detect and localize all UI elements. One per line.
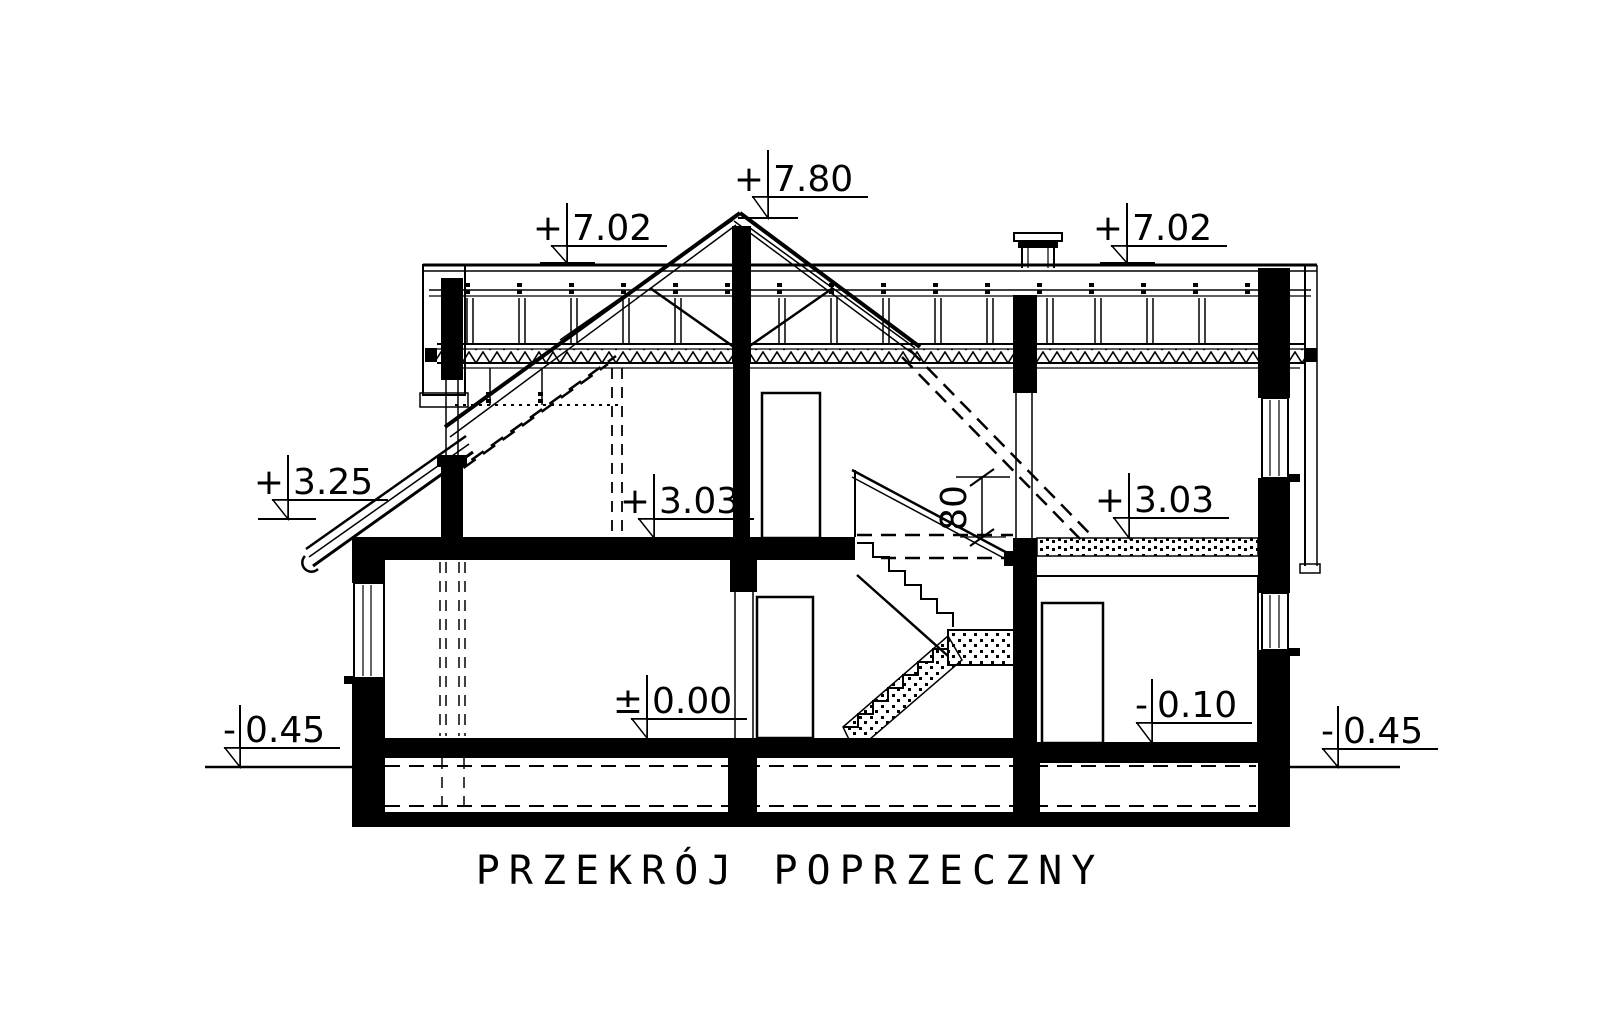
level-sign: -	[223, 710, 236, 751]
level-value: 3.03	[659, 481, 739, 522]
dim-value: 80	[934, 485, 975, 531]
stairs	[843, 470, 1018, 752]
foundation	[205, 755, 1400, 827]
left-wall-window	[354, 583, 384, 678]
doors	[757, 393, 1103, 743]
ground-floor-slab	[352, 738, 1037, 758]
level-marker-ground-floor: ± 0.00	[613, 675, 747, 738]
level-sign: +	[620, 481, 650, 522]
level-sign: -	[1135, 685, 1148, 726]
right-ground-window	[1262, 593, 1288, 650]
level-marker-attic-floor-right: + 3.03	[1095, 473, 1229, 538]
level-value: 7.80	[773, 159, 853, 200]
level-sign: -	[1321, 711, 1334, 752]
right-roof-overhang	[1300, 265, 1320, 573]
porch-column-hidden	[440, 562, 465, 736]
lower-flight	[843, 636, 962, 752]
chimney	[1014, 233, 1062, 268]
ground-door-leaf	[757, 597, 813, 738]
truss-kingpost	[732, 226, 751, 362]
attic-floor-right	[1037, 538, 1258, 576]
roof-joist-posts	[467, 298, 1205, 344]
cross-section-drawing: + 7.80 + 7.02 + 7.02 + 3.25 + 3.03 +	[0, 0, 1600, 1028]
level-value: 7.02	[1132, 208, 1212, 249]
level-marker-roof-right: + 7.02	[1093, 203, 1227, 263]
attic-door-opening-jambs	[1016, 393, 1032, 538]
attic-floor-slab	[352, 537, 855, 560]
level-sign: +	[1093, 208, 1123, 249]
level-marker-terrain-right: - 0.45	[1321, 706, 1438, 767]
level-sign: +	[533, 208, 563, 249]
roof-truss	[445, 213, 920, 437]
level-sign: +	[734, 159, 764, 200]
upper-flight	[857, 543, 953, 656]
level-sign: +	[1095, 480, 1125, 521]
left-fascia	[420, 265, 468, 407]
level-marker-roof-left: + 7.02	[533, 203, 667, 263]
level-sign: +	[254, 462, 284, 503]
level-value: 0.45	[1343, 711, 1423, 752]
level-value: 3.25	[293, 462, 373, 503]
level-sign: ±	[613, 681, 643, 722]
level-value: 7.02	[572, 208, 652, 249]
level-value: 0.00	[652, 681, 732, 722]
level-value: 0.10	[1157, 685, 1237, 726]
drawing-sheet: + 7.80 + 7.02 + 7.02 + 3.25 + 3.03 +	[0, 0, 1600, 1028]
level-marker-ridge: + 7.80	[734, 150, 868, 218]
level-marker-garage-floor: - 0.10	[1135, 679, 1252, 743]
truss-strut-right	[741, 288, 833, 352]
attic-door-leaf	[762, 393, 820, 538]
level-value: 0.45	[245, 710, 325, 751]
footing-course	[352, 812, 1290, 827]
garage-door-leaf	[1042, 603, 1103, 743]
level-value: 3.03	[1134, 480, 1214, 521]
garage-floor-slab	[1035, 743, 1290, 763]
truss-strut-left	[650, 288, 741, 352]
right-rafter	[740, 213, 920, 347]
level-marker-porch-eave: + 3.25	[254, 455, 388, 519]
right-attic-window	[1262, 398, 1288, 478]
level-marker-terrain-left: - 0.45	[223, 705, 340, 767]
drawing-title: PRZEKRÓJ POPRZECZNY	[476, 846, 1105, 894]
